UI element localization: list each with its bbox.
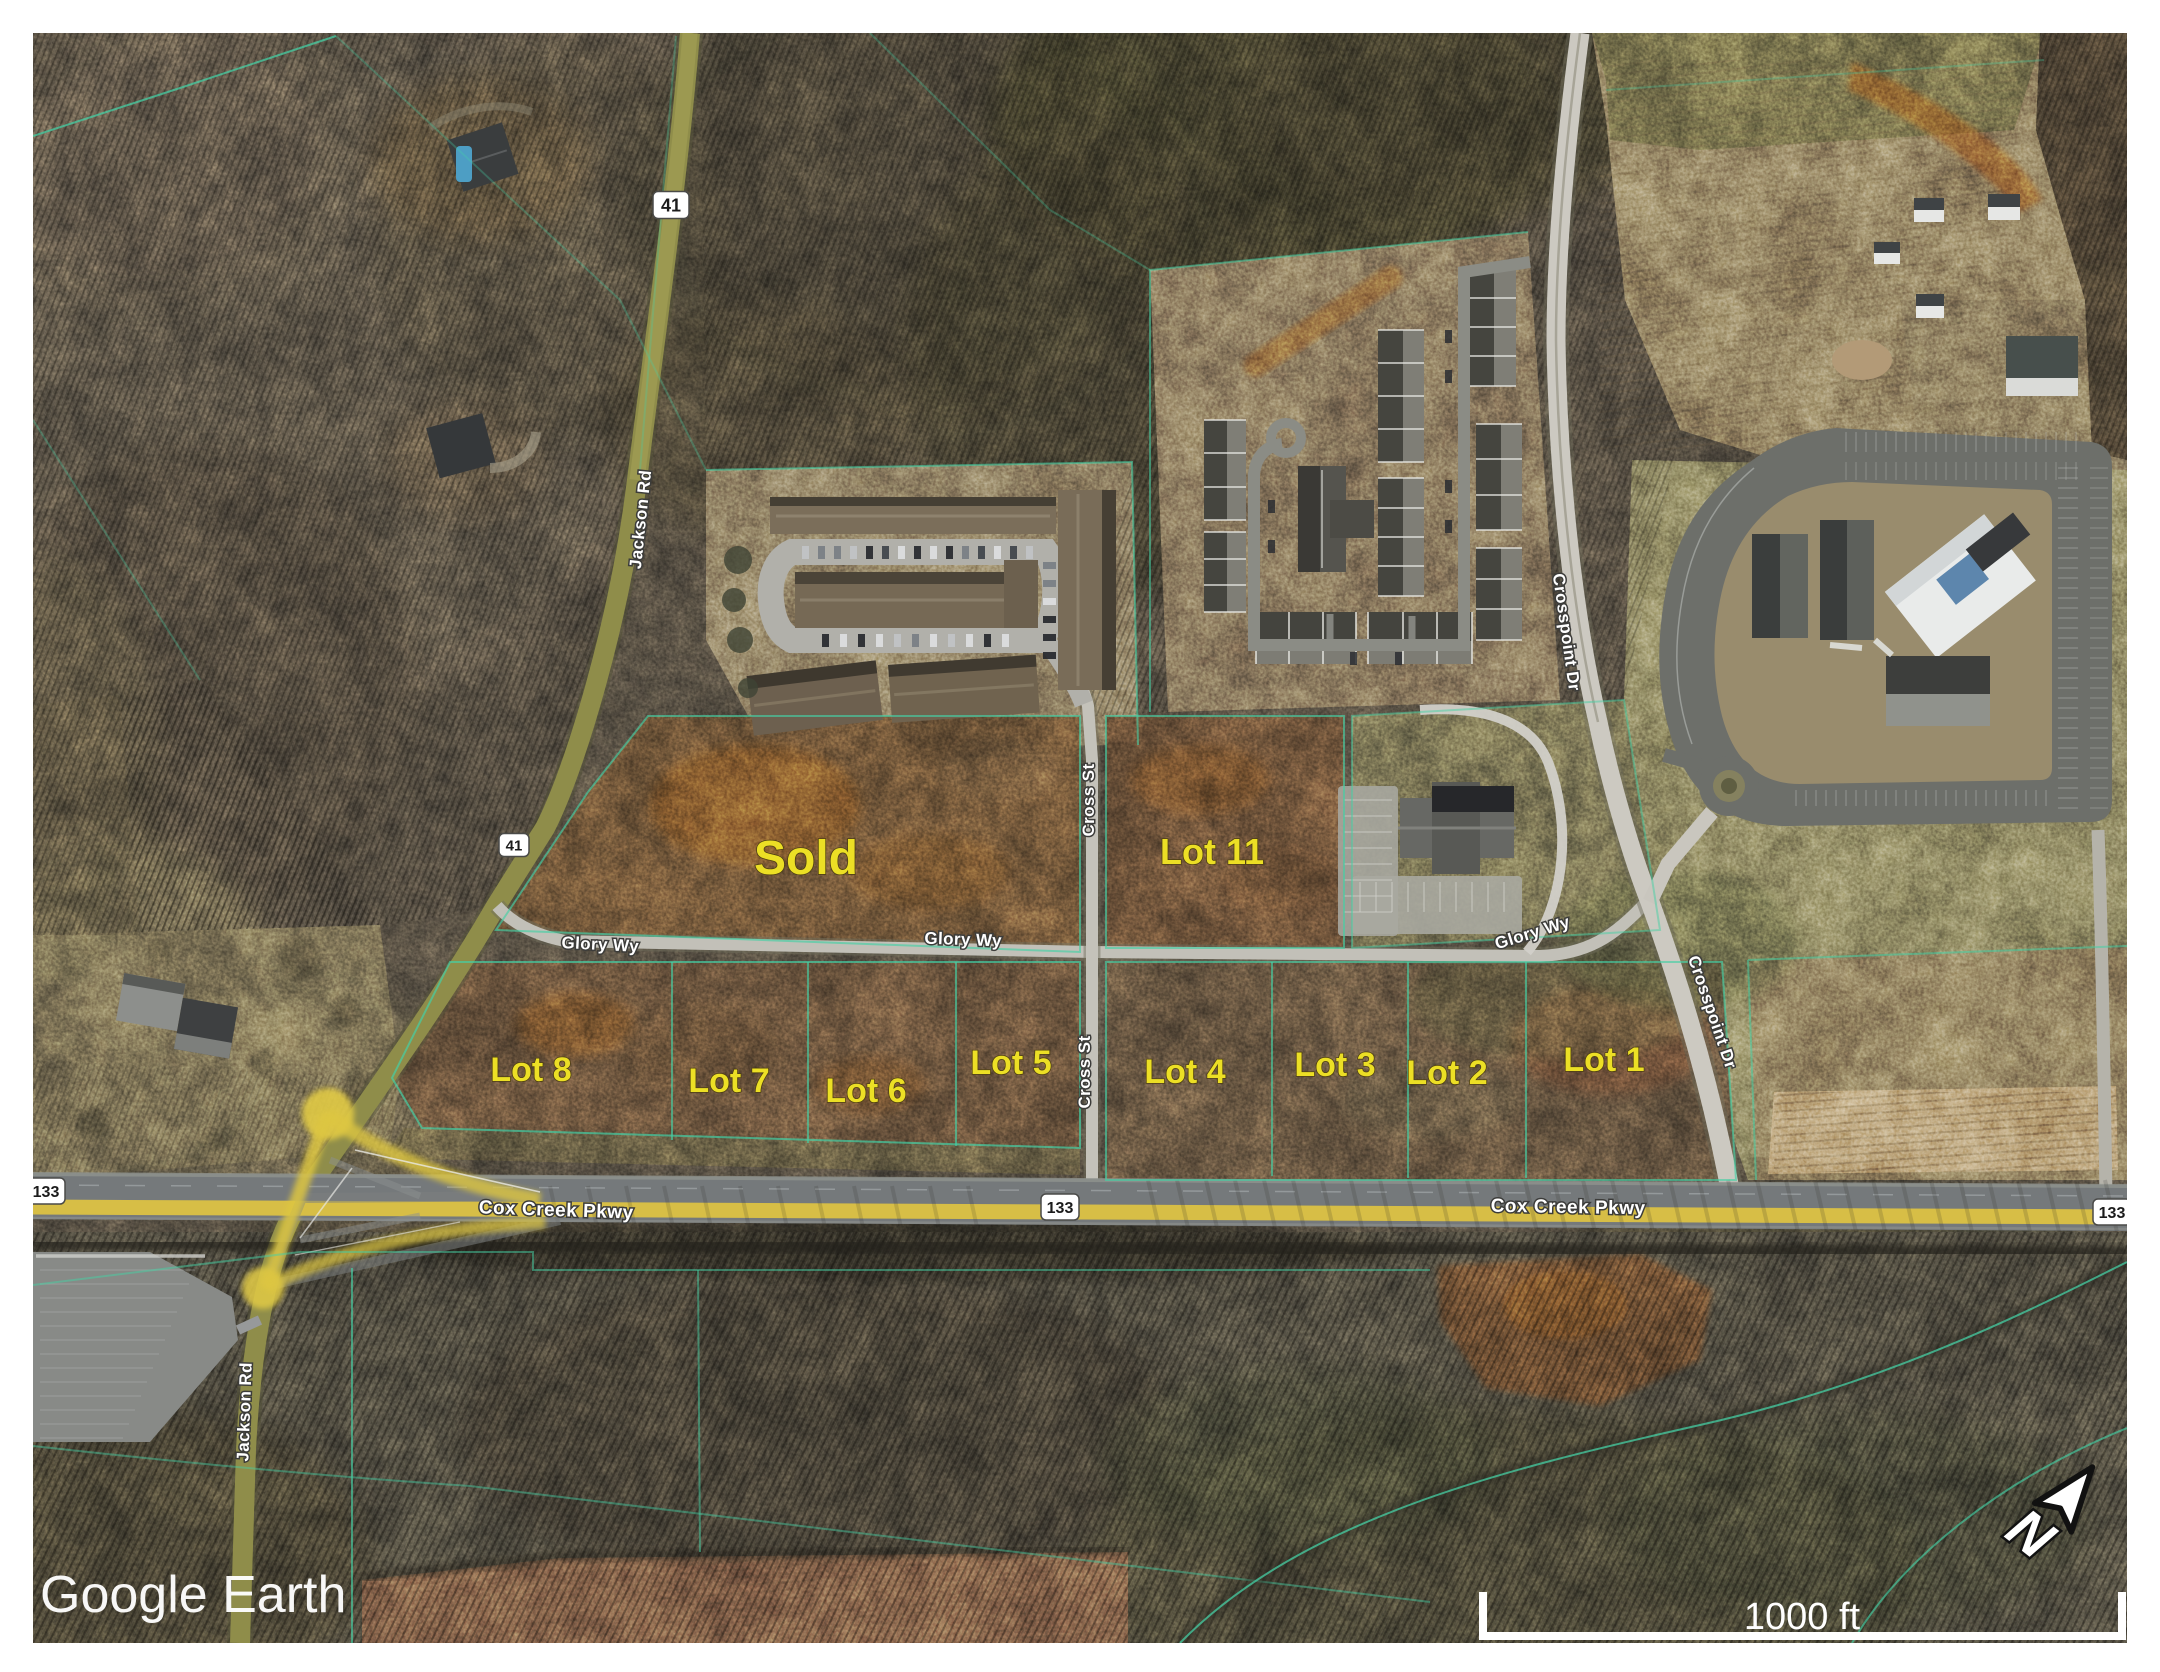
svg-text:133: 133 xyxy=(2099,1205,2126,1222)
svg-text:Glory Wy: Glory Wy xyxy=(561,933,640,956)
svg-text:Cox Creek Pkwy: Cox Creek Pkwy xyxy=(1490,1196,1645,1220)
svg-text:Sold: Sold xyxy=(754,832,858,885)
svg-text:Cross St: Cross St xyxy=(1075,1035,1094,1108)
svg-text:1000 ft: 1000 ft xyxy=(1744,1596,1861,1638)
svg-text:41: 41 xyxy=(661,195,681,215)
svg-text:Lot 7: Lot 7 xyxy=(688,1062,769,1100)
svg-text:41: 41 xyxy=(506,837,523,854)
svg-text:Lot 3: Lot 3 xyxy=(1294,1046,1375,1084)
svg-text:133: 133 xyxy=(33,1184,60,1201)
svg-text:Lot 11: Lot 11 xyxy=(1160,831,1264,872)
svg-text:Lot 4: Lot 4 xyxy=(1144,1053,1225,1091)
svg-text:Cross St: Cross St xyxy=(1079,763,1098,836)
svg-text:Lot 5: Lot 5 xyxy=(970,1044,1051,1082)
svg-text:Lot 8: Lot 8 xyxy=(490,1051,571,1089)
svg-text:Lot 1: Lot 1 xyxy=(1563,1041,1644,1079)
svg-text:133: 133 xyxy=(1047,1200,1074,1217)
svg-text:Google Earth: Google Earth xyxy=(40,1566,346,1624)
svg-text:Glory Wy: Glory Wy xyxy=(924,929,1002,951)
svg-text:Lot 2: Lot 2 xyxy=(1406,1054,1487,1092)
svg-text:Lot 6: Lot 6 xyxy=(825,1072,906,1110)
svg-text:Jackson Rd: Jackson Rd xyxy=(233,1362,255,1462)
